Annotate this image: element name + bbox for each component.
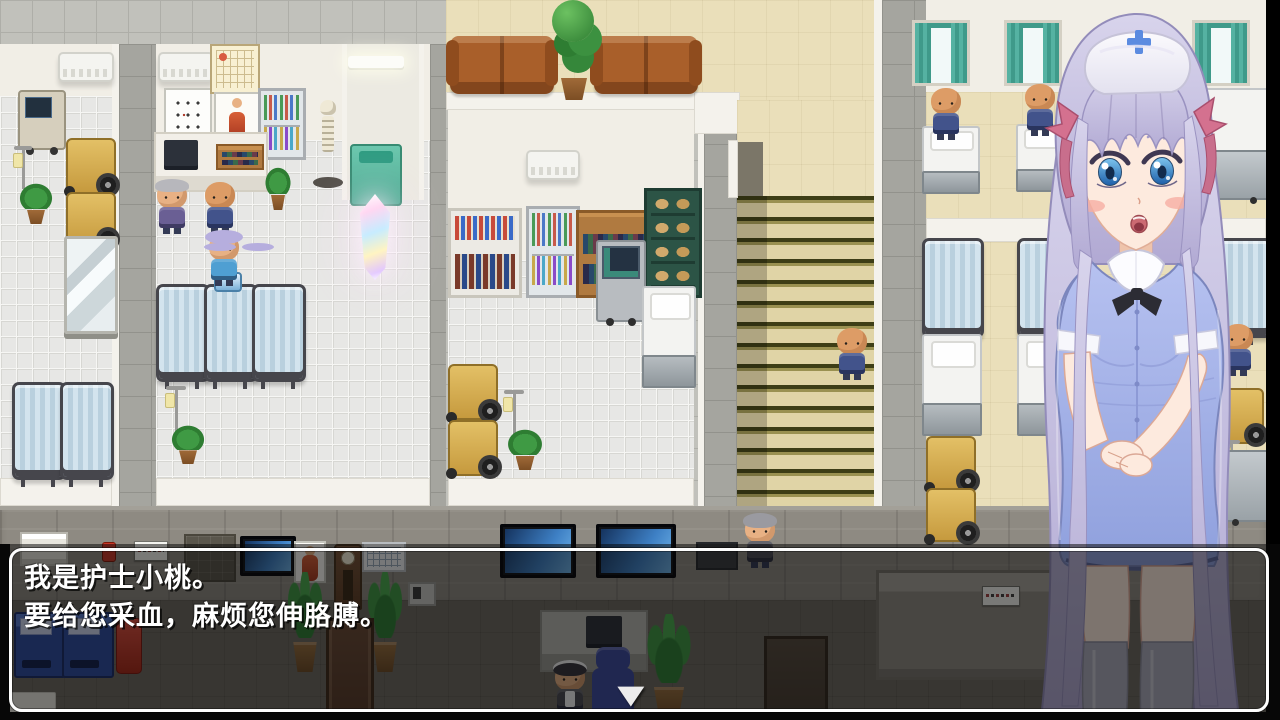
npc-body: [207, 207, 233, 228]
air-conditioner: [158, 52, 214, 82]
stairs-shadow: [737, 196, 767, 506]
wheelchair: [926, 488, 976, 542]
stairs-corner-shadow: [737, 142, 763, 196]
privacy-screen: [156, 284, 210, 382]
dialogue-line-1: 我是护士小桃。: [24, 556, 220, 595]
potted-plant: [18, 182, 54, 224]
ceiling-light: [348, 56, 404, 68]
npc-head: [205, 182, 235, 209]
supply-shelf: [526, 206, 580, 298]
wheelchair: [926, 436, 976, 490]
npc-old-woman[interactable]: [154, 182, 190, 234]
iv-bag: [503, 397, 513, 412]
monitor-cart: [596, 240, 646, 322]
wheelchair: [66, 138, 116, 194]
potted-plant: [506, 428, 544, 470]
skeleton-model: [312, 100, 344, 188]
skeleton-skull: [320, 100, 336, 115]
bottom-wall-cap-3: [448, 478, 694, 506]
npc-bald-patient[interactable]: [202, 182, 238, 234]
npc-body: [839, 353, 865, 374]
potted-tree: [550, 0, 598, 100]
privacy-screen: [922, 238, 984, 338]
drink-cabinet: [448, 208, 522, 298]
dialogue-line-2: 要给您采血，麻烦您伸胳膊。: [24, 594, 388, 633]
hospital-bed: [922, 334, 982, 436]
bottom-wall-cap-1: [0, 478, 112, 506]
privacy-screen: [12, 382, 66, 480]
npc-head: [157, 182, 187, 209]
corridor-center: [430, 44, 446, 506]
hospital-bed: [642, 286, 696, 388]
potted-plant: [264, 166, 292, 210]
save-crystal-glow: [355, 194, 395, 280]
mirror: [64, 236, 118, 334]
npc-body: [933, 113, 959, 134]
stairs-wall-cap: [728, 140, 738, 198]
wall-calendar: [210, 44, 260, 94]
skeleton-stand: [313, 177, 343, 188]
iv-bag: [13, 153, 23, 168]
bottom-wall-cap-2: [156, 478, 430, 506]
save-crystal[interactable]: [355, 194, 395, 280]
potted-plant: [170, 424, 206, 464]
air-conditioner: [58, 52, 114, 82]
book-row: [216, 144, 264, 170]
iv-bag: [165, 393, 175, 408]
npc-body: [211, 259, 237, 280]
wheelchair: [448, 420, 498, 476]
npc-head: [837, 328, 867, 355]
npc-body: [159, 207, 185, 228]
sofa: [594, 36, 698, 94]
npc-head: [745, 516, 775, 543]
laptop: [164, 140, 198, 166]
npc-girl-lavender[interactable]: [206, 234, 242, 286]
wall-corner-cap: [694, 92, 740, 134]
curtained-window: [912, 20, 970, 86]
ecg-machine: [18, 90, 66, 150]
air-conditioner: [526, 150, 580, 180]
npc-bald-patient[interactable]: [928, 88, 964, 140]
game-viewport: 我是护士小桃。 要给您采血，麻烦您伸胳膊。 ▼: [0, 0, 1280, 720]
npc-head: [931, 88, 961, 115]
npc-bald-patient-stairs[interactable]: [834, 328, 870, 380]
sofa: [450, 36, 554, 94]
continue-indicator-icon[interactable]: ▼: [608, 678, 653, 712]
privacy-screen: [252, 284, 306, 382]
skeleton-torso: [322, 116, 334, 152]
bread-rack: [644, 188, 702, 298]
npc-head: [209, 234, 239, 261]
dialogue-edge-right: [1270, 544, 1280, 720]
privacy-screen: [204, 284, 258, 382]
privacy-screen: [60, 382, 114, 480]
wheelchair: [448, 364, 498, 420]
